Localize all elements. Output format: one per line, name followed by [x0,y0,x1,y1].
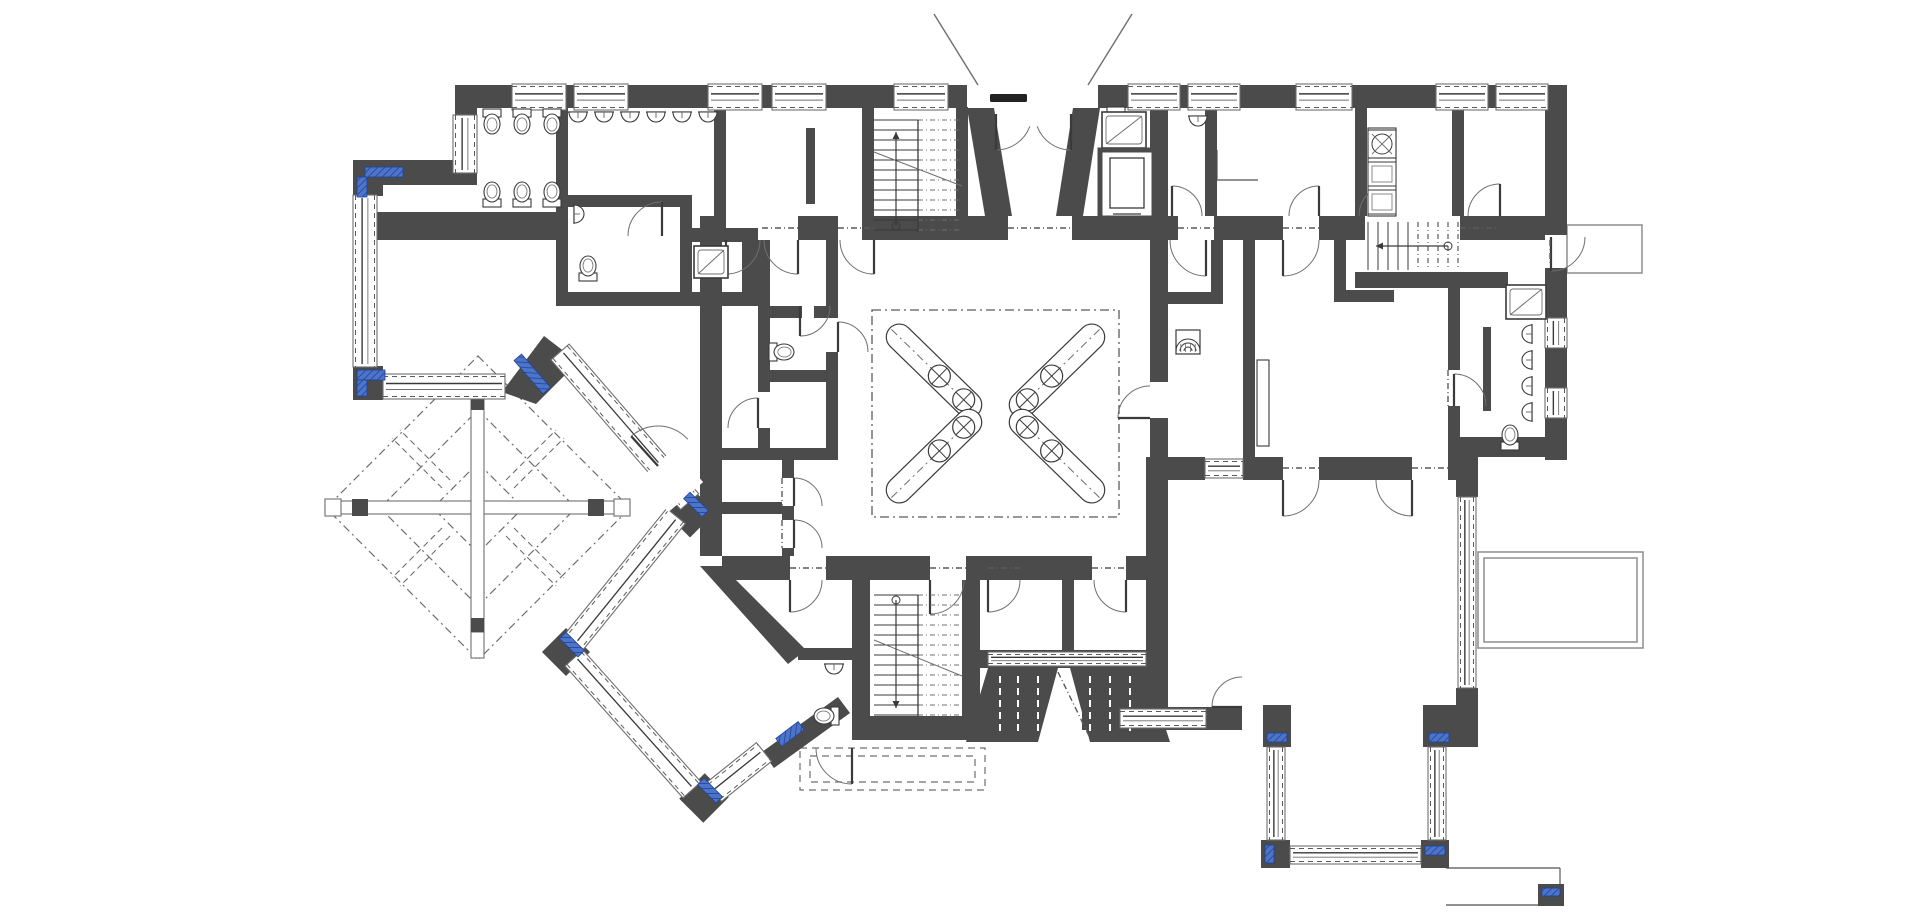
wall [1334,240,1346,296]
toilet-symbol [579,256,597,281]
wall [1545,268,1567,460]
wall [1168,457,1205,480]
wall [1126,556,1146,580]
window [1188,84,1240,110]
wall [798,216,838,240]
roof-beam-cap [471,632,484,658]
wall [862,107,874,240]
window [1205,459,1243,478]
wall [1062,580,1074,650]
toilet-symbol [483,109,501,134]
window [353,195,377,367]
wall [1355,107,1367,216]
structural-post [471,618,484,632]
window [1545,388,1567,418]
shower-symbol [1102,112,1146,148]
entrance-annotation-mark [990,94,1027,102]
wall [798,648,852,660]
blue-insulation-hatch [1425,846,1445,855]
toilet-symbol [1501,425,1519,450]
blue-insulation-hatch [357,370,385,380]
wall [1456,688,1478,707]
wall [556,195,568,306]
toilet-symbol [543,109,561,134]
wall [826,556,870,580]
window [1120,709,1206,728]
toilet-symbol [513,109,531,134]
wall [782,506,794,520]
wall [814,306,838,318]
wall [1146,457,1168,480]
structural-post [806,128,815,204]
toilet-symbol [513,182,531,207]
structural-post [471,398,484,410]
window [574,84,628,110]
wall [680,228,742,242]
wall [852,716,985,740]
wall [1243,240,1255,457]
wall [758,306,802,318]
roof-beam-cap [325,499,341,516]
wall [1355,272,1508,288]
wall [1460,216,1545,240]
wall [1456,457,1478,497]
bench-symbol [1257,360,1269,446]
wall [1243,457,1283,480]
toilet-symbol [543,182,561,207]
wall [962,580,980,716]
wall [1205,107,1217,216]
roof-beam-cap [614,499,630,516]
window [1496,84,1548,110]
blue-insulation-hatch [1542,888,1560,896]
blue-insulation-hatch [365,167,403,177]
toilet-symbol [769,343,794,361]
stove-symbol [1176,330,1200,354]
wall [826,352,838,460]
window [1128,84,1180,110]
window [1267,747,1285,840]
blue-insulation-hatch [1265,845,1274,863]
structural-post [588,499,604,516]
wall [1146,480,1168,707]
blue-insulation-hatch [1267,733,1287,742]
window [772,84,826,110]
wall [870,556,930,580]
window [1458,497,1476,688]
toilet-symbol [483,182,501,207]
window [512,84,566,110]
window [1290,846,1421,864]
structural-post [1483,327,1491,411]
wall [852,580,870,716]
wall [377,212,568,240]
wall [758,370,838,382]
kitchen-counter [1368,128,1396,216]
window [1428,747,1446,840]
window [988,652,1146,666]
shower-symbol [694,246,728,278]
shower-symbol [1506,285,1546,319]
blue-insulation-hatch [357,380,367,396]
window [894,84,948,110]
wall [782,548,794,556]
wall [1452,107,1464,216]
wall [1334,290,1394,302]
elevator-symbol [1100,150,1154,218]
window [383,374,505,399]
wall [700,448,838,460]
wall [556,292,754,306]
window [1296,84,1352,110]
wall [714,107,726,240]
blue-insulation-hatch [357,177,367,197]
floor-plan-drawing [0,0,1920,917]
roof-ridge-beam-vertical [471,398,484,632]
wall [1211,240,1223,298]
structural-post [352,499,368,516]
blue-insulation-hatch [1429,733,1449,742]
window [1545,318,1567,348]
wall [568,195,680,207]
window [453,115,477,173]
wall [1319,216,1365,240]
wall [1448,288,1460,370]
wall [1168,292,1223,304]
wall [1319,457,1412,480]
wall [1150,418,1168,457]
toilet-symbol [814,707,839,725]
window [1436,84,1488,110]
wall [1214,216,1283,240]
wall [1022,556,1092,580]
floor-plan-canvas [0,0,1920,917]
wall [722,502,782,514]
window [708,84,762,110]
wall [782,460,794,478]
wall [680,195,692,292]
